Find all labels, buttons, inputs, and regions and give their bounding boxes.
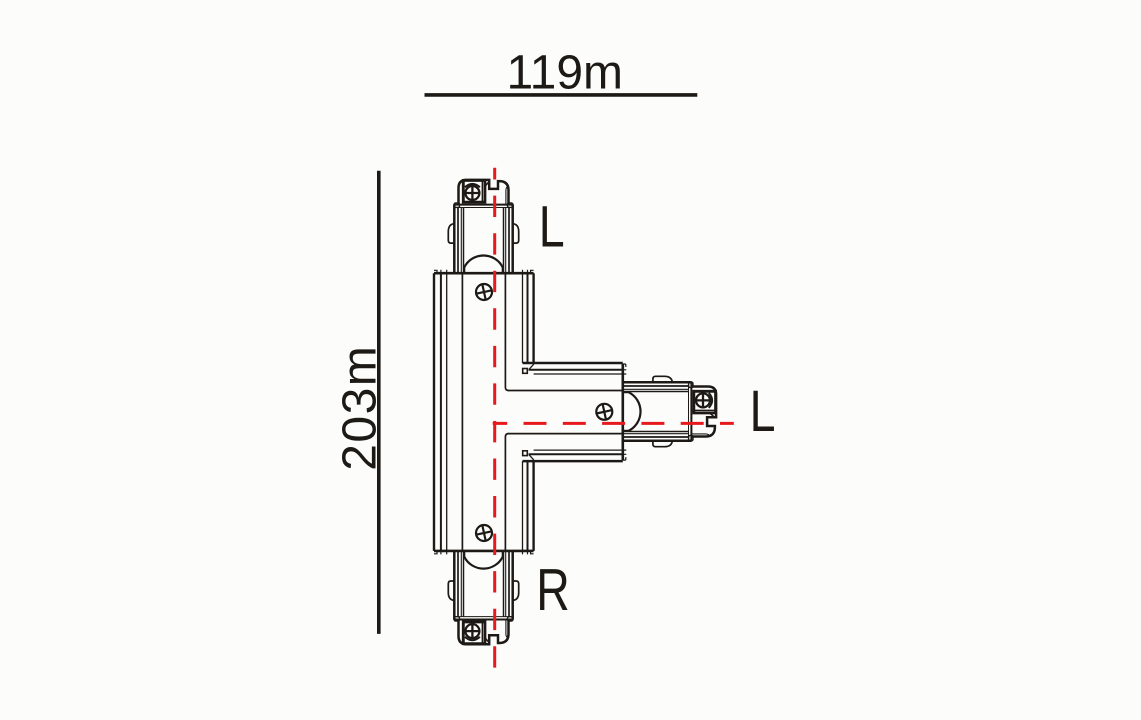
svg-text:L: L: [539, 195, 565, 260]
svg-text:R: R: [536, 557, 570, 623]
svg-text:203m: 203m: [334, 345, 387, 471]
svg-text:L: L: [750, 379, 776, 444]
svg-text:119m: 119m: [507, 47, 624, 100]
